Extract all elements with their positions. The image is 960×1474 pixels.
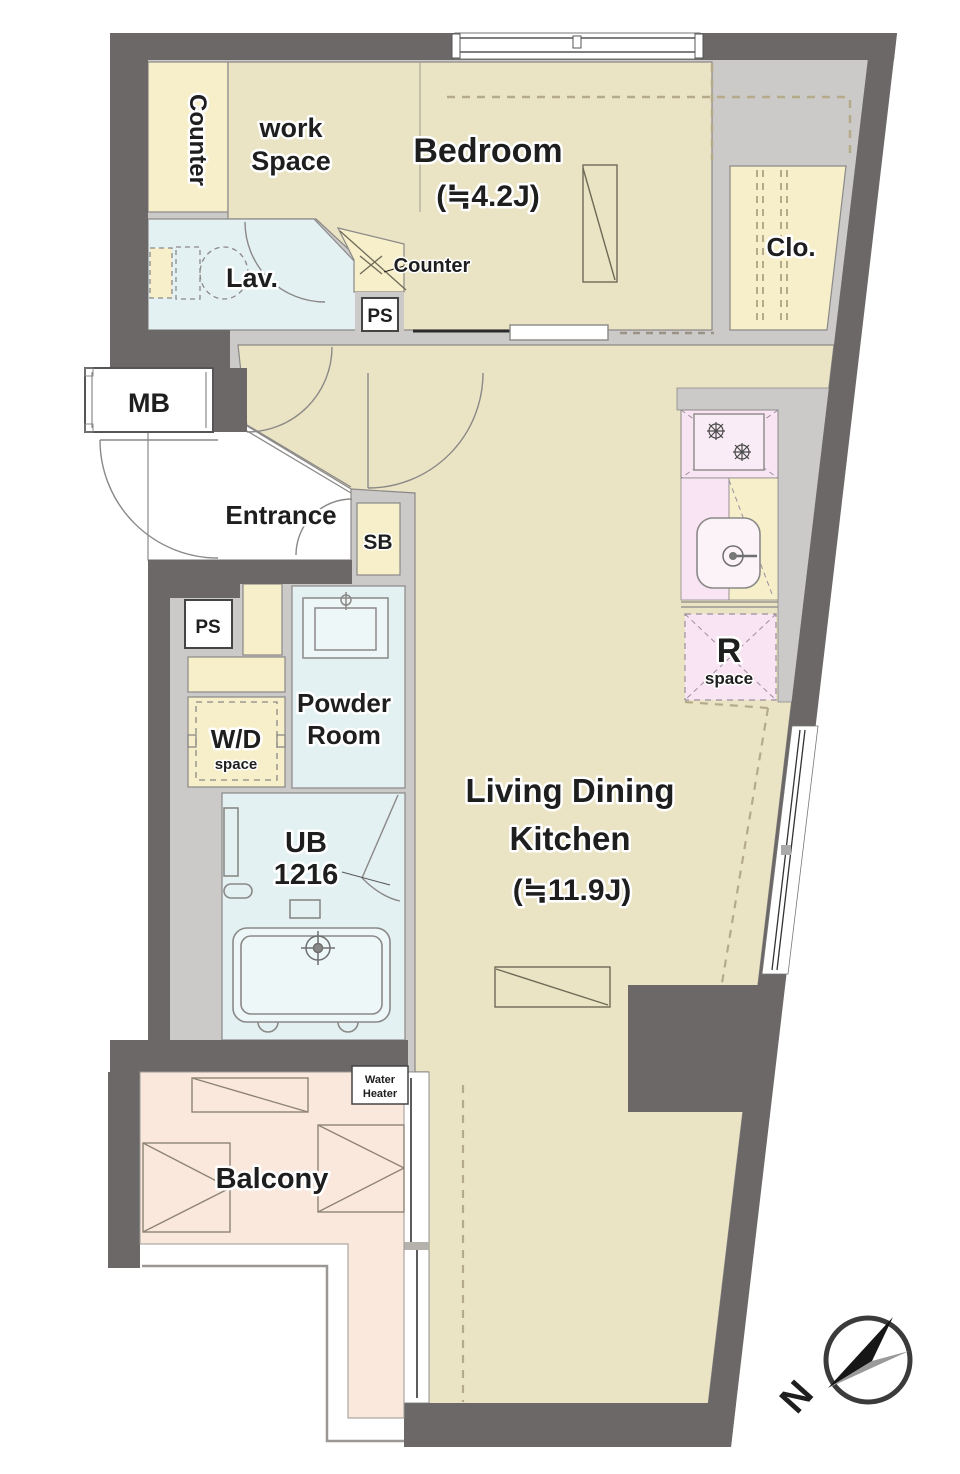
wall-pier (628, 985, 758, 1112)
powder-label-2: Room (307, 720, 381, 750)
ub-label-2: 1216 (274, 859, 339, 891)
ldk-label-2: Kitchen (509, 820, 630, 857)
lavatory-label: Lav. (226, 263, 278, 293)
entrance-step-strip (243, 584, 282, 655)
ps-upper-label: PS (367, 306, 392, 327)
balcony (140, 1072, 404, 1441)
balcony-window (404, 1072, 429, 1403)
compass (826, 1317, 910, 1402)
ps-lower-label: PS (195, 617, 220, 638)
r-space-label-1: R (717, 632, 742, 670)
counter-top-label: Counter (184, 94, 211, 186)
water-heater-label-1: Water (365, 1074, 396, 1086)
entrance-label: Entrance (225, 500, 336, 530)
water-heater-label-2: Heater (363, 1088, 398, 1100)
r-space-label-2: space (705, 669, 753, 688)
wd-label-1: W/D (211, 724, 262, 754)
bedroom-top-window (452, 33, 703, 59)
closet-label: Clo. (766, 232, 815, 262)
ub-label-1: UB (285, 827, 327, 859)
powder-basin (303, 592, 388, 658)
balcony-floor (140, 1072, 404, 1418)
workspace-label-1: work (258, 113, 323, 143)
ldk-area-label: (≒11.9J) (513, 874, 632, 907)
wd-upper-strip (188, 657, 285, 692)
wall-bottom (404, 1403, 736, 1447)
wd-label-2: space (215, 756, 258, 773)
ldk-label-1: Living Dining (466, 772, 675, 809)
kitchen-sink (681, 478, 778, 607)
corner-counter-label: Counter (394, 255, 471, 277)
mb-label: MB (128, 388, 170, 418)
floor-plan-drawing: Bedroom (≒4.2J) work Space Counter Clo. … (0, 0, 960, 1474)
compass-north-label: N (772, 1373, 822, 1422)
balcony-label: Balcony (216, 1163, 329, 1195)
workspace-label-2: Space (251, 146, 331, 176)
powder-label-1: Powder (297, 688, 391, 718)
kitchen-stove (681, 410, 778, 478)
sb-label: SB (363, 531, 392, 554)
wall-left-lower (148, 598, 170, 1072)
wall-powder-top (213, 560, 352, 584)
bedroom-label: Bedroom (413, 132, 562, 170)
wall-balcony-left (108, 1072, 140, 1268)
bedroom-area-label: (≒4.2J) (436, 180, 540, 213)
floor-plan: Bedroom (≒4.2J) work Space Counter Clo. … (0, 0, 960, 1474)
